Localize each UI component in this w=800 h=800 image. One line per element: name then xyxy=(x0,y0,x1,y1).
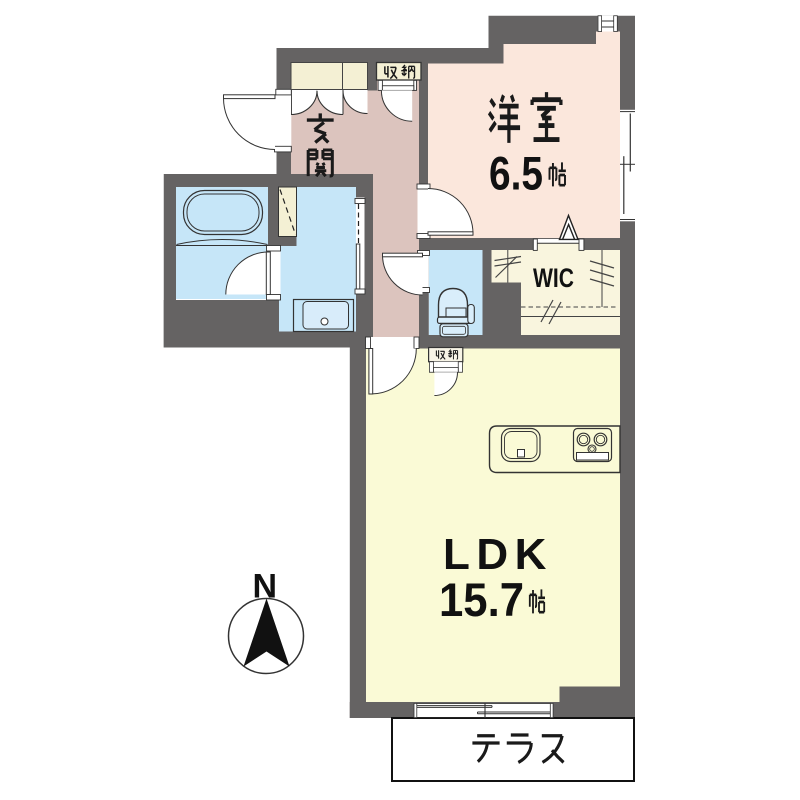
svg-text:15.7: 15.7 xyxy=(439,573,524,626)
svg-text:6.5: 6.5 xyxy=(489,147,543,200)
svg-text:N: N xyxy=(253,568,278,606)
svg-text:LDK: LDK xyxy=(443,530,553,579)
svg-text:WIC: WIC xyxy=(533,263,574,293)
